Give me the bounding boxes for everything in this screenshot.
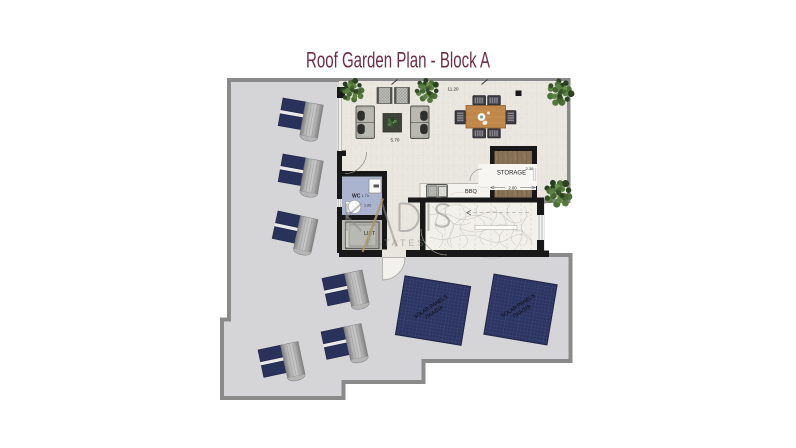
svg-text:5.70: 5.70 — [391, 138, 400, 143]
svg-text:1.70: 1.70 — [362, 194, 369, 198]
svg-text:STORAGE: STORAGE — [497, 171, 526, 177]
svg-text:Roof Garden Plan - Block A: Roof Garden Plan - Block A — [306, 48, 490, 73]
svg-text:2.30: 2.30 — [526, 166, 535, 171]
svg-text:11.20: 11.20 — [448, 87, 459, 92]
svg-text:WC: WC — [352, 194, 361, 200]
svg-text:ESTATES: ESTATES — [366, 238, 428, 249]
svg-text:2.00: 2.00 — [508, 185, 517, 190]
svg-text:BBQ: BBQ — [465, 189, 477, 195]
svg-text:1.85: 1.85 — [364, 204, 371, 208]
